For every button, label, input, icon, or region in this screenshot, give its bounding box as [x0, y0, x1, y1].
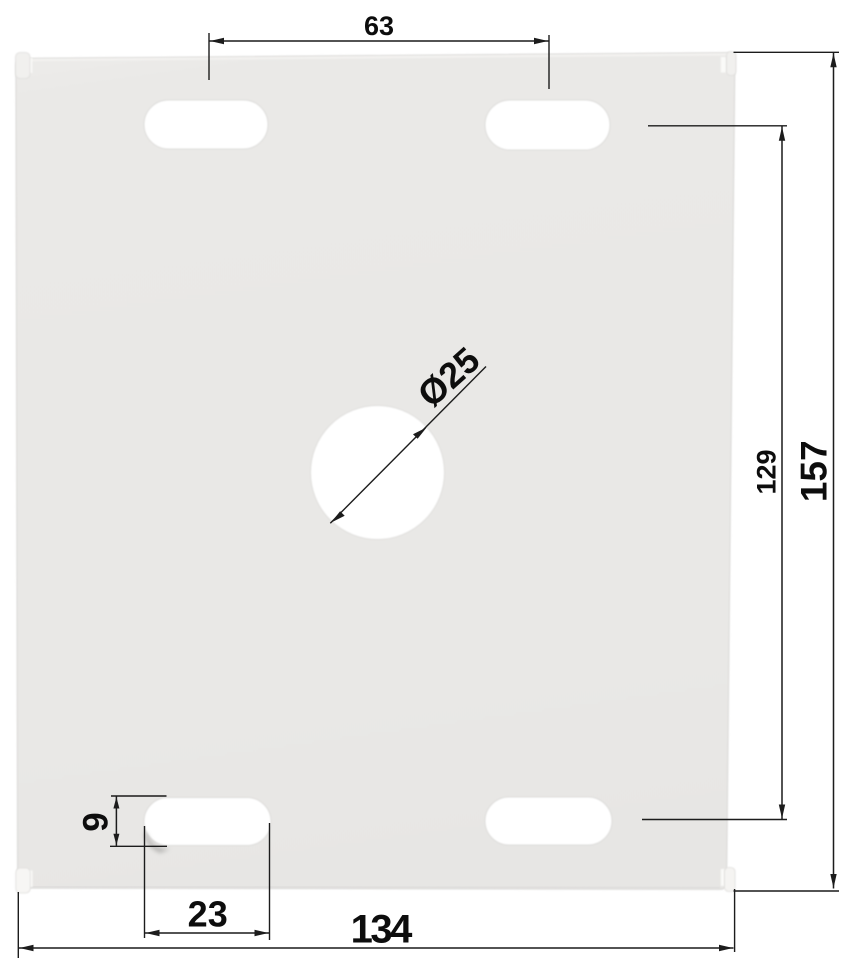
svg-text:157: 157	[794, 440, 835, 502]
svg-text:23: 23	[188, 894, 228, 935]
svg-text:129: 129	[752, 449, 782, 494]
svg-text:134: 134	[351, 908, 413, 952]
svg-text:63: 63	[364, 11, 394, 41]
svg-text:9: 9	[77, 812, 116, 831]
